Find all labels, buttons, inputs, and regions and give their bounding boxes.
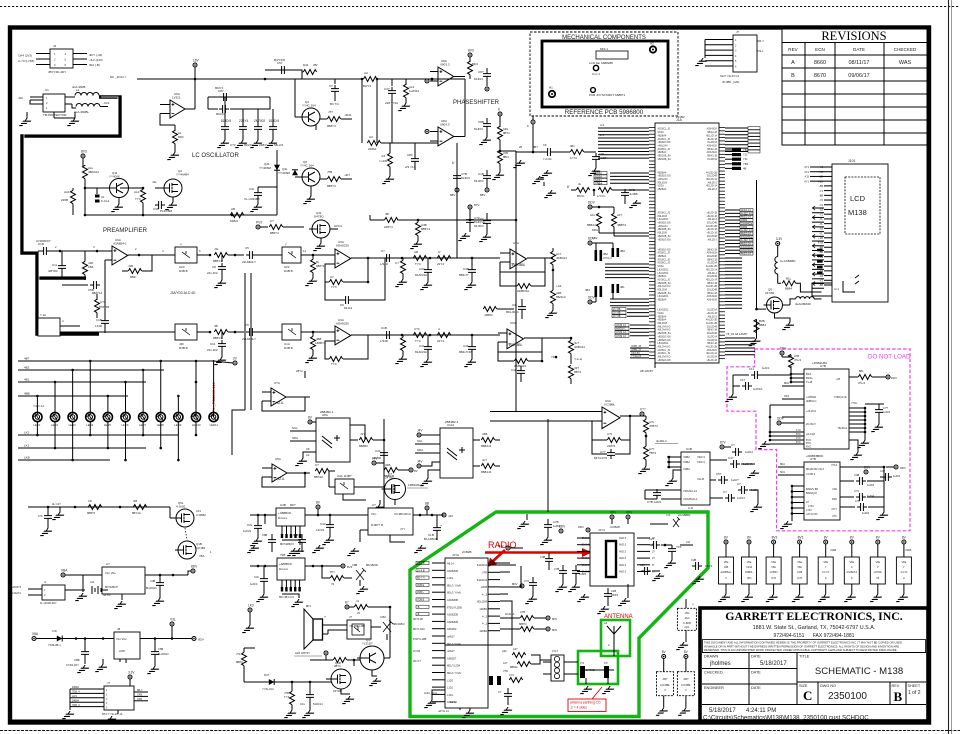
svg-text:U1: U1 [45, 88, 49, 92]
svg-text:J1Y: J1Y [360, 432, 365, 436]
svg-text:V?R: V?R [503, 669, 508, 673]
svg-text:3.3V: 3.3V [128, 671, 135, 675]
svg-text:878Y84: 878Y84 [99, 305, 110, 309]
svg-text:PCB JOYSTKMNT A88871: PCB JOYSTKMNT A88871 [589, 93, 625, 97]
svg-text:226B: 226B [61, 198, 68, 202]
svg-text:M138: M138 [848, 208, 867, 217]
svg-text:D4B B: D4B B [179, 269, 188, 273]
svg-text:24Y8D: 24Y8D [385, 476, 395, 480]
svg-text:2/4 1B: 2/4 1B [413, 650, 421, 653]
svg-text:BAD2V 8D: BAD2V 8D [806, 488, 818, 491]
svg-text:C?4: C?4 [509, 673, 514, 677]
svg-text:7DB_4: 7DB_4 [72, 704, 80, 707]
svg-text:S12? Y4LDY-14: S12? Y4LDY-14 [720, 74, 740, 78]
svg-text:-C21: -C21 [103, 101, 110, 105]
svg-text:81JD/4: 81JD/4 [221, 119, 231, 123]
svg-text:58L2/4: 58L2/4 [274, 143, 284, 147]
svg-text:8660: 8660 [814, 60, 826, 66]
svg-text:8DV: 8DV [512, 582, 518, 586]
svg-text:D4B/4: D4B/4 [72, 699, 80, 702]
svg-text:4b/Y (-44): 4b/Y (-44) [89, 53, 102, 57]
svg-text:4B: 4B [214, 324, 218, 328]
svg-text:TY4: TY4 [284, 695, 290, 699]
svg-text:AB?: AB? [663, 677, 668, 681]
svg-text:A8L2D-3: A8L2D-3 [708, 188, 718, 191]
svg-text:8TD/YL1DB: 8TD/YL1DB [413, 638, 427, 641]
svg-text:C?4: C?4 [414, 327, 420, 331]
svg-text:C-8KB: C-8KB [683, 621, 691, 625]
svg-text:LC OSCILLATOR: LC OSCILLATOR [192, 153, 239, 159]
svg-text:4B2BA4: 4B2BA4 [658, 299, 667, 302]
svg-text:L?43: L?43 [808, 505, 814, 508]
svg-text:V: V [877, 565, 879, 569]
svg-text:SHEET: SHEET [908, 684, 921, 688]
svg-text:22Y4: 22Y4 [437, 262, 444, 266]
svg-text:6': 6' [567, 185, 570, 189]
svg-text:2YC: 2YC [796, 437, 801, 440]
svg-text:88J1B/4D: 88J1B/4D [366, 563, 378, 567]
svg-text:2B84B2-1: 2B84B2-1 [320, 410, 334, 414]
svg-text:B1/1: B1/1 [806, 372, 812, 376]
svg-text:22x-D/2: 22x-D/2 [207, 348, 218, 352]
svg-text:ANTENNA: ANTENNA [604, 614, 633, 620]
svg-text:22x-D/2: 22x-D/2 [207, 271, 218, 275]
svg-text:1/8: 1/8 [836, 377, 840, 381]
svg-text:ENGINEER: ENGINEER [704, 686, 724, 690]
svg-text:C?L: C?L [855, 499, 860, 503]
svg-text:J4V: J4V [372, 457, 378, 461]
svg-text:A7JD81DY: A7JD81DY [36, 239, 51, 243]
svg-text:1 of 2: 1 of 2 [908, 690, 921, 696]
svg-text:4L ±4A2D-4DY: 4L ±4A2D-4DY [40, 602, 57, 605]
svg-text:AD8-8/2A: AD8-8/2A [707, 299, 718, 302]
svg-text:C5?: C5? [716, 472, 722, 476]
svg-text:8LJ2D14: 8LJ2D14 [707, 158, 717, 161]
svg-text:888B4: 888B4 [359, 444, 368, 448]
svg-text:C:\Circuits\Schematics\M138\M1: C:\Circuits\Schematics\M138\M138_2350100… [703, 715, 869, 722]
svg-text:AB?: AB? [684, 677, 689, 681]
svg-text:A?: A? [330, 275, 334, 279]
svg-text:VDA/8ALL1: VDA/8ALL1 [683, 497, 698, 501]
svg-text:D4B B: D4B B [284, 269, 293, 273]
svg-text:C3M: C3M [380, 615, 386, 619]
svg-text:C84: C84 [407, 153, 413, 157]
svg-text:YY4L314: YY4L314 [262, 687, 274, 691]
svg-text:J4V: J4V [417, 429, 423, 433]
svg-text:88BY4: 88BY4 [421, 227, 430, 231]
svg-text:V: V [725, 576, 727, 580]
svg-text:V3L: V3L [170, 618, 176, 622]
svg-text:C8: C8 [212, 265, 216, 269]
svg-text:V8a: V8a [797, 560, 802, 564]
svg-text:WAS: WAS [899, 60, 912, 66]
svg-text:C3L: C3L [249, 187, 255, 191]
svg-text:U?: U? [106, 562, 110, 566]
svg-text:1uB/2: 1uB/2 [579, 572, 587, 576]
svg-text:DATE: DATE [751, 686, 761, 690]
svg-text:-Y1: -Y1 [819, 189, 824, 193]
svg-text:4?4-L: 4?4-L [757, 49, 764, 53]
svg-text:4/8Y84: 4/8Y84 [48, 269, 58, 273]
svg-text:YY4D6M: YY4D6M [278, 171, 291, 175]
svg-text:V?L3: V?L3 [831, 464, 837, 467]
svg-text:8DV: 8DV [198, 638, 204, 642]
svg-text:GARRETT ELECTRONICS, INC.: GARRETT ELECTRONICS, INC. [725, 609, 902, 623]
svg-text:8?: 8? [345, 601, 349, 605]
svg-text:Y11: Y11 [743, 153, 748, 157]
svg-text:228Y4: 228Y4 [384, 225, 393, 229]
svg-text:8DV: 8DV [552, 617, 557, 621]
svg-text:C?: C? [381, 249, 385, 253]
svg-text:D84: D84 [178, 135, 184, 139]
svg-text:J4: J4 [53, 44, 57, 48]
svg-text:J1Y4: J1Y4 [598, 528, 605, 532]
svg-text:J/: J/ [44, 580, 46, 584]
svg-text:A?B: A?B [520, 610, 525, 614]
svg-text:84/3: 84/3 [472, 62, 478, 66]
svg-text:C?: C? [395, 261, 399, 265]
svg-text:4:24:11 PM: 4:24:11 PM [746, 708, 776, 714]
svg-text:V8a: V8a [875, 560, 880, 564]
svg-text:4-_3: 4-_3 [482, 615, 488, 618]
svg-text:A/A4B8a-1: A/A4B8a-1 [720, 571, 732, 574]
svg-text:C2?: C2? [640, 563, 645, 567]
svg-text:REV: REV [788, 47, 798, 52]
svg-text:?4?L: ?4?L [676, 545, 682, 549]
svg-text:D4B84-: D4B84- [745, 572, 753, 574]
svg-text:YY4C 264: YY4C 264 [300, 164, 314, 168]
svg-text:8V3: 8V3 [81, 150, 87, 154]
svg-text:J8: J8 [117, 627, 120, 631]
svg-text:A: A [825, 576, 827, 580]
svg-text:?B?4: ?B?4 [649, 451, 656, 455]
svg-text:4DB414: 4DB414 [556, 256, 567, 260]
svg-text:12DB2: 12DB2 [479, 630, 487, 633]
svg-text:AB 4JD/8Y: AB 4JD/8Y [640, 369, 653, 373]
svg-text:AVD.3: AVD.3 [619, 544, 627, 547]
svg-text:8B?4: 8B?4 [503, 131, 510, 135]
svg-text:C-D: C-D [688, 506, 693, 510]
svg-text:+: + [324, 615, 326, 619]
svg-text:C2/: C2/ [686, 540, 690, 544]
svg-text:DK _4D14 =: DK _4D14 = [110, 75, 127, 79]
svg-text:8D/YL1DA: 8D/YL1DA [413, 628, 425, 631]
svg-text:AVD.3: AVD.3 [619, 571, 627, 574]
svg-text:972/494-6151 FAX 972/494-: 972/494-6151 FAX 972/494-1881 [774, 633, 855, 639]
svg-text:SCL: SCL [417, 439, 423, 443]
svg-text:C?4: C?4 [524, 579, 529, 583]
svg-text:D4B B: D4B B [284, 346, 293, 350]
svg-text:A+AXB4BD: A+AXB4BD [780, 259, 796, 263]
svg-text:4L?: 4L? [482, 458, 487, 462]
svg-text:8DL/YL2DA: 8DL/YL2DA [447, 665, 461, 668]
svg-text:DY-4 B: DY-4 B [417, 562, 425, 565]
svg-text:TY4: TY4 [331, 362, 337, 366]
svg-text:8DV: 8DV [626, 511, 633, 515]
svg-text:8JA2D11: 8JA2D11 [477, 564, 488, 567]
svg-text:B: B [894, 689, 903, 704]
svg-text:/ L4/D: / L4/D [379, 159, 388, 163]
svg-text:+CL2C2: +CL2C2 [806, 409, 816, 413]
svg-text:1YC: 1YC [796, 429, 801, 432]
svg-text:V8a: V8a [849, 560, 854, 564]
svg-text:4YCL4: 4YCL4 [603, 256, 612, 260]
svg-text:Tx-/8: Tx-/8 [806, 380, 813, 384]
svg-text:43B: 43B [482, 432, 487, 436]
svg-text:A1: A1 [306, 453, 310, 457]
svg-text:D4?: D4? [264, 673, 270, 677]
svg-text:A3B2D7: A3B2D7 [447, 657, 457, 660]
svg-text:U5A: U5A [275, 457, 281, 461]
svg-text:3D?/L1B: 3D?/L1B [413, 618, 423, 621]
svg-text:jholmes: jholmes [709, 661, 731, 667]
svg-text:V?R: V?R [482, 572, 487, 575]
svg-text:V8a: V8a [823, 560, 828, 564]
svg-text:CH4 (2V2): CH4 (2V2) [18, 54, 32, 58]
svg-text:4uA-360B: 4uA-360B [72, 85, 85, 89]
svg-text:D4T8D: D4T8D [314, 215, 324, 219]
svg-text:8DL/1 YYaN: 8DL/1 YYaN [447, 672, 461, 675]
svg-text:A3AB23-2: A3AB23-2 [847, 571, 858, 574]
svg-text:C4L: C4L [511, 368, 517, 372]
svg-text:C1B: C1B [96, 318, 102, 322]
svg-text:D5V: D5V [780, 347, 787, 351]
svg-text:8BY4A: 8BY4A [132, 511, 141, 515]
svg-text:REVISIONS: REVISIONS [821, 29, 886, 43]
svg-text:8DA: 8DA [784, 381, 789, 385]
svg-text:1JuB8: 1JuB8 [599, 156, 607, 160]
svg-text:888?4: 888?4 [316, 264, 325, 268]
svg-text:+: + [440, 524, 442, 528]
svg-text:84?4-D?4: 84?4-D?4 [594, 456, 608, 460]
svg-text:888Y4: 888Y4 [270, 231, 279, 235]
svg-text:?4: ?4 [331, 582, 335, 586]
svg-text:B2/Y4: B2/Y4 [363, 84, 372, 88]
svg-text:J41B: J41B [905, 548, 912, 552]
svg-text:BLJDDLV: BLJDDLV [146, 587, 157, 590]
svg-text:4BD414: 4BD414 [88, 170, 99, 174]
svg-text:DDV: DDV [588, 237, 596, 241]
svg-text:2CB2B: 2CB2B [462, 550, 472, 554]
svg-text:A31B2DB: A31B2DB [447, 599, 458, 602]
svg-text:C?: C? [723, 490, 727, 494]
svg-text:YB2: YB2 [743, 162, 749, 166]
svg-text:4BB: 4BB [24, 392, 30, 396]
svg-text:8/: 8/ [652, 564, 654, 567]
svg-text:8V3: 8V3 [468, 49, 474, 53]
svg-text:C: C [803, 688, 812, 703]
svg-text:AJ?: AJ? [503, 661, 508, 665]
svg-text:U?A: U?A [274, 381, 280, 385]
svg-text:J1B: J1B [128, 264, 133, 268]
svg-text:LV88: LV88 [797, 572, 803, 574]
svg-text:A31B2DB: A31B2DB [447, 570, 458, 573]
svg-text:C?2: C?2 [230, 143, 236, 147]
svg-text:C3L: C3L [247, 523, 253, 527]
svg-text:VDB L: VDB L [417, 591, 425, 594]
svg-text:H2: H2 [650, 42, 654, 46]
svg-text:8V3: 8V3 [798, 536, 804, 540]
svg-text:8B84: 8B84 [785, 287, 792, 291]
svg-text:08/11/17: 08/11/17 [848, 60, 869, 66]
svg-text:8670: 8670 [814, 73, 826, 79]
svg-text:DDV: DDV [588, 296, 596, 300]
svg-text:484-Y: 484-Y [757, 39, 764, 43]
svg-text:C3B: C3B [854, 473, 859, 477]
svg-text:J4V: J4V [448, 514, 453, 518]
svg-text:A/8D3Y(: A/8D3Y( [616, 328, 626, 331]
svg-text:4B2D2B_8A: 4B2D2B_8A [658, 158, 672, 161]
svg-text:81AD/4A: 81AD/4A [415, 350, 427, 354]
svg-text:8BY: 8BY [533, 145, 538, 149]
svg-text:8B: 8B [425, 502, 429, 506]
svg-text:22-8L3A: 22-8L3A [505, 613, 515, 616]
svg-text:1uD/4A: 1uD/4A [753, 387, 762, 391]
svg-text:C?4: C?4 [854, 489, 859, 493]
svg-text:4?L/4: 4?L/4 [858, 381, 865, 385]
svg-text:+A4: +A4 [556, 284, 562, 288]
svg-text:J1YA: J1YA [452, 553, 459, 557]
svg-text:Y4/8L3B-1: Y4/8L3B-1 [48, 643, 61, 647]
svg-text:PREAMPLIFIER: PREAMPLIFIER [103, 228, 148, 234]
svg-text:SD1: SD1 [784, 394, 790, 398]
svg-text:DY-4 B: DY-4 B [417, 569, 425, 572]
svg-text:C?: C? [329, 84, 333, 88]
svg-text:LMD: LMD [119, 649, 125, 653]
svg-text:8D/Y1: 8D/Y1 [215, 86, 224, 90]
svg-text:1B4: 1B4 [88, 265, 94, 269]
svg-text:8B?4: 8B?4 [574, 370, 581, 374]
svg-text:8D?42B/4Y: 8D?42B/4Y [280, 542, 294, 546]
svg-text:V8o: V8o [685, 611, 690, 615]
svg-text:Y: Y [825, 565, 827, 569]
svg-text:C4B: C4B [540, 555, 545, 559]
svg-text:LV321L: LV321L [273, 401, 284, 405]
svg-text:8YC: 8YC [796, 433, 801, 436]
svg-text:2N7002: 2N7002 [254, 119, 265, 123]
svg-text:CM3.3: CM3.3 [582, 537, 590, 540]
svg-text:1uD/4: 1uD/4 [862, 511, 870, 515]
svg-text:A3A: A3A [337, 474, 343, 478]
svg-text:4Y1: 4Y1 [804, 170, 809, 174]
svg-text:V??: V?? [640, 408, 646, 412]
svg-text:A8: A8 [306, 447, 310, 451]
svg-text:16V: 16V [193, 59, 200, 63]
svg-text:J101: J101 [848, 159, 855, 163]
svg-text:A32 2/8?4Y: A32 2/8?4Y [295, 651, 310, 655]
svg-text:8DA: 8DA [780, 463, 785, 466]
svg-text:C?L: C?L [38, 514, 43, 518]
svg-text:-B: -B [417, 606, 420, 609]
svg-text:4J1: 4J1 [90, 580, 95, 584]
svg-text:C2?: C2? [649, 537, 655, 541]
svg-text:TB PROTECTOR: TB PROTECTOR [43, 113, 67, 117]
svg-text:L/34D: L/34D [380, 339, 389, 343]
svg-text:Y24B(-D-4L: Y24B(-D-4L [834, 396, 848, 399]
svg-text:LK1: LK1 [24, 444, 30, 448]
svg-text:C1?: C1? [740, 378, 746, 382]
svg-text:C?1: C?1 [607, 432, 613, 436]
svg-text:D4B77 R: D4B77 R [371, 523, 384, 527]
svg-text:L1D1: L1D1 [447, 694, 454, 697]
svg-text:VDB E: VDB E [417, 584, 425, 587]
svg-text:1J4D: 1J4D [95, 324, 103, 328]
svg-text:C?B: C?B [293, 533, 298, 537]
svg-text:+8D82/1-D8: +8D82/1-D8 [658, 359, 672, 362]
svg-text:U?d: U?d [771, 576, 776, 580]
svg-text:-4b21: -4b21 [344, 113, 352, 117]
svg-text:81AD/4A: 81AD/4A [415, 273, 427, 277]
svg-text:u4-CL8: u4-CL8 [806, 432, 815, 436]
svg-text:2J4B2: 2J4B2 [676, 115, 685, 119]
svg-text:8D?42B/4Y: 8D?42B/4Y [105, 585, 119, 589]
svg-text:V8a: V8a [902, 560, 907, 564]
svg-text:U?: U? [372, 503, 376, 507]
svg-text:YDB B: YDB B [417, 599, 425, 602]
svg-text:4J2: 4J2 [805, 175, 810, 179]
svg-text:D4B/4: D4B/4 [72, 686, 80, 689]
svg-text:CM3.3: CM3.3 [582, 557, 590, 560]
svg-text:B: B [791, 73, 795, 79]
svg-text:V: V [685, 688, 687, 692]
svg-text:4-K1B2: 4-K1B2 [196, 546, 206, 550]
svg-text:DRAWN: DRAWN [704, 655, 718, 659]
svg-text:J1L: J1L [152, 180, 157, 184]
svg-text:V1D: V1D [832, 488, 837, 491]
svg-text:JYY: JYY [400, 527, 405, 531]
svg-text:228B4JA: 228B4JA [517, 289, 529, 293]
svg-text:AB: AB [231, 207, 235, 211]
svg-text:2DJ 1?: 2DJ 1? [413, 660, 422, 663]
svg-text:88BY4: 88BY4 [213, 259, 222, 263]
svg-text:VD3.3: VD3.3 [697, 460, 705, 464]
svg-text:D4B B: D4B B [179, 346, 188, 350]
svg-text:XL-U434B8: XL-U434B8 [244, 197, 260, 201]
svg-text:8B4/JY: 8B4/JY [459, 273, 469, 277]
svg-text:SCL: SCL [292, 426, 298, 430]
svg-text:V8a: V8a [771, 560, 776, 564]
svg-text:YB2: YB2 [743, 148, 749, 152]
svg-text:VD3.3: VD3.3 [697, 455, 705, 459]
svg-text:TY4: TY4 [415, 262, 421, 266]
svg-text:+C8ND1: +C8ND1 [806, 395, 817, 399]
svg-text:RESERVED. THIS IS AN UNPUBLISH: RESERVED. THIS IS AN UNPUBLISHED WORK PR… [704, 648, 898, 652]
svg-text:C3L: C3L [512, 303, 518, 307]
svg-text:+8L2D-18: +8L2D-18 [706, 359, 717, 362]
svg-text:AVD.3: AVD.3 [619, 564, 627, 567]
svg-text:C1B: C1B [478, 172, 484, 176]
svg-text:Y8_D4 A8 4JD/8Y: Y8_D4 A8 4JD/8Y [726, 332, 748, 336]
svg-text:V8o: V8o [797, 565, 802, 569]
svg-text:Con 1: Con 1 [592, 72, 600, 76]
svg-text:8D2J/4: 8D2J/4 [244, 143, 254, 147]
svg-text:V4B2: V4B2 [683, 460, 690, 464]
svg-text:V8a: V8a [724, 560, 729, 564]
svg-text:Y8L/D12: Y8L/D12 [837, 427, 847, 430]
svg-text:LVC38BL: LVC38BL [660, 685, 670, 687]
svg-text:22Y4: 22Y4 [437, 339, 444, 343]
svg-text:J1L: J1L [214, 247, 219, 251]
svg-text:22J4B8B2: 22J4B8B2 [678, 513, 691, 517]
svg-text:VJ.DD 2: VJ.DD 2 [806, 473, 816, 476]
svg-text:J4B: J4B [724, 565, 729, 569]
svg-text:4-_3: 4-_3 [482, 593, 488, 596]
svg-text:C38: C38 [153, 207, 159, 211]
svg-text:4uA/28M3D: 4uA/28M3D [795, 302, 812, 306]
svg-text:A1L: A1L [590, 213, 596, 217]
svg-text:C4B: C4B [137, 698, 142, 701]
svg-text:22L84DLY: 22L84DLY [242, 337, 256, 341]
